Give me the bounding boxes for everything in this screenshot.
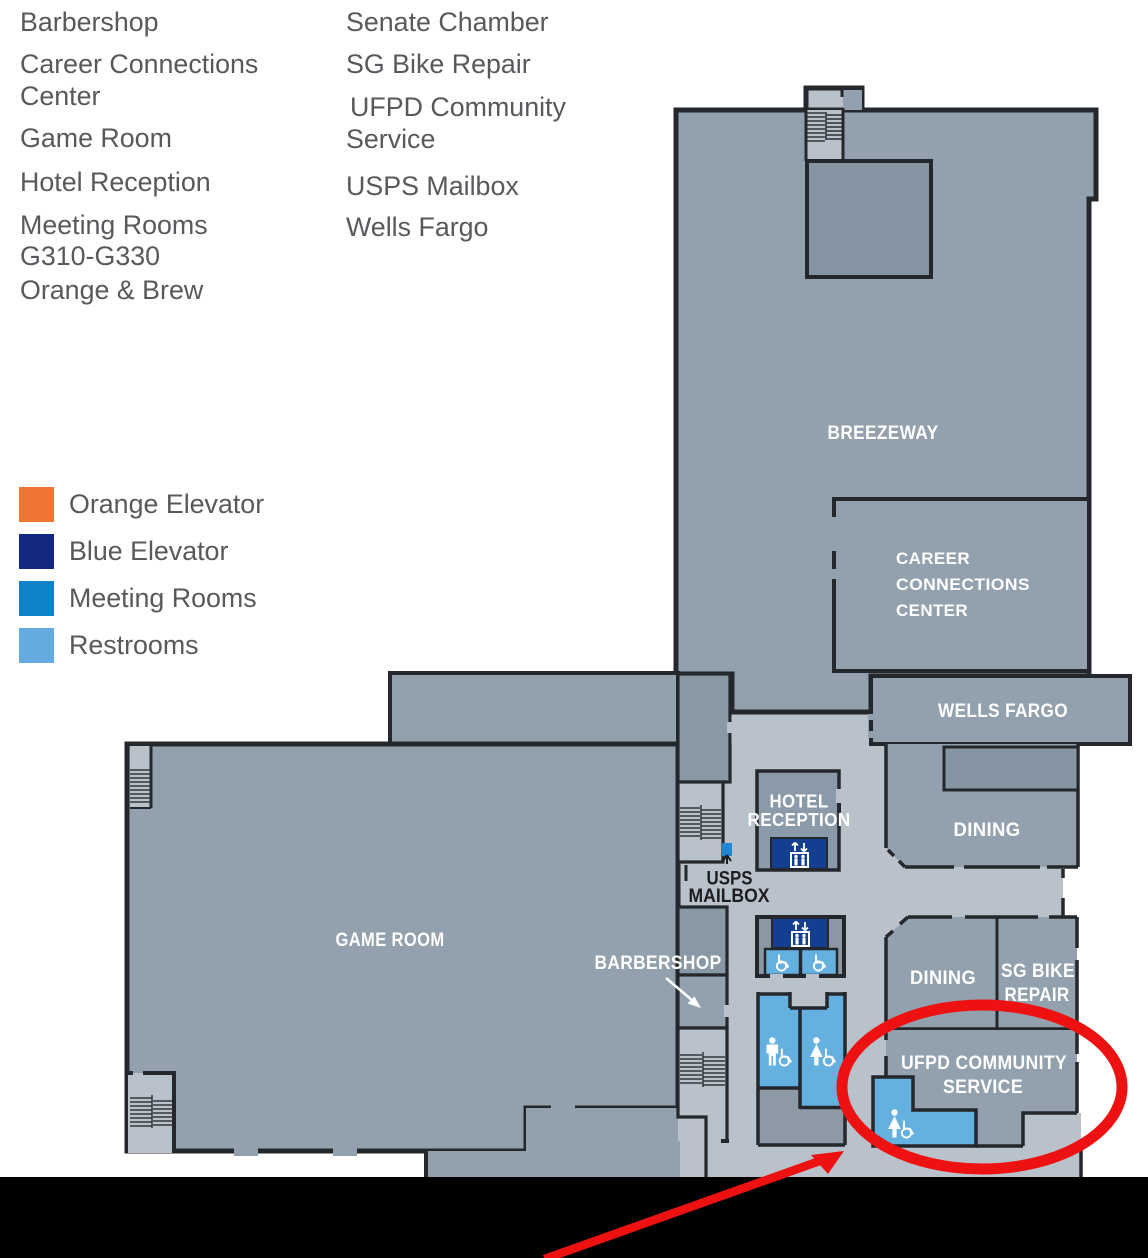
- svg-text:CENTER: CENTER: [896, 601, 968, 620]
- svg-text:Service: Service: [346, 124, 435, 154]
- svg-text:Wells Fargo: Wells Fargo: [346, 212, 488, 242]
- svg-text:HOTEL: HOTEL: [770, 792, 829, 812]
- svg-text:Senate Chamber: Senate Chamber: [346, 7, 549, 37]
- svg-text:Barbershop: Barbershop: [20, 7, 159, 37]
- svg-text:SERVICE: SERVICE: [943, 1077, 1023, 1098]
- svg-text:Orange Elevator: Orange Elevator: [69, 489, 264, 519]
- svg-text:RECEPTION: RECEPTION: [748, 810, 851, 830]
- svg-text:G310-G330: G310-G330: [20, 241, 160, 271]
- svg-text:GAME ROOM: GAME ROOM: [336, 930, 445, 951]
- svg-text:UFPD COMMUNITY: UFPD COMMUNITY: [901, 1053, 1067, 1074]
- svg-text:Meeting Rooms: Meeting Rooms: [69, 583, 257, 613]
- svg-text:DINING: DINING: [954, 820, 1021, 841]
- svg-text:Blue Elevator: Blue Elevator: [69, 536, 228, 566]
- svg-text:Center: Center: [20, 81, 101, 111]
- svg-text:Restrooms: Restrooms: [69, 630, 199, 660]
- svg-text:USPS Mailbox: USPS Mailbox: [346, 171, 519, 201]
- svg-text:Game Room: Game Room: [20, 123, 172, 153]
- svg-text:WELLS FARGO: WELLS FARGO: [938, 701, 1068, 722]
- svg-text:Meeting Rooms: Meeting Rooms: [20, 210, 208, 240]
- svg-text:Hotel Reception: Hotel Reception: [20, 167, 211, 197]
- svg-text:SG BIKE: SG BIKE: [1001, 961, 1075, 982]
- svg-text:MAILBOX: MAILBOX: [689, 886, 770, 907]
- svg-text:BREEZEWAY: BREEZEWAY: [828, 423, 939, 444]
- svg-text:Orange & Brew: Orange & Brew: [20, 275, 204, 305]
- svg-text:SG Bike Repair: SG Bike Repair: [346, 49, 531, 79]
- svg-text:Career Connections: Career Connections: [20, 49, 258, 79]
- svg-text:DINING: DINING: [910, 968, 976, 989]
- svg-text:CAREER: CAREER: [896, 549, 970, 568]
- svg-text:BARBERSHOP: BARBERSHOP: [595, 953, 722, 974]
- svg-text:UFPD Community: UFPD Community: [350, 92, 566, 122]
- svg-text:CONNECTIONS: CONNECTIONS: [896, 575, 1030, 594]
